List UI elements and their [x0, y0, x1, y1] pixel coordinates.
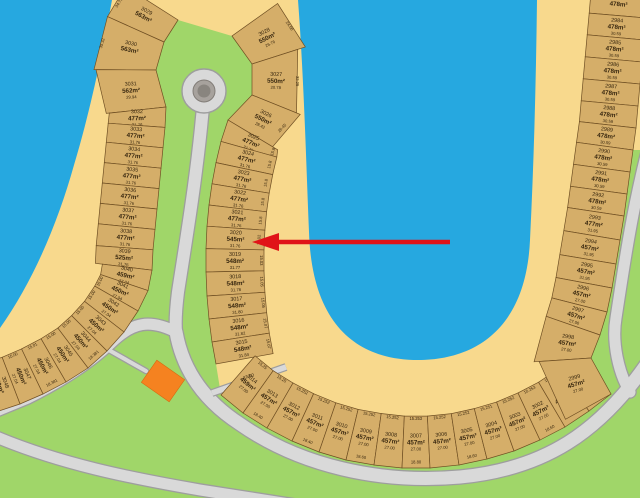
lot-frontage-dimension: 15.05	[259, 276, 264, 287]
lot-frontage-dimension: 15.03	[259, 255, 264, 266]
lot-depth-dimension: 30.59	[611, 31, 623, 37]
lot-3020: 3020545m²31.7615.02	[206, 226, 265, 250]
lot-depth-dimension: 30.59	[605, 96, 617, 102]
lot-depth-dimension: 30.59	[609, 52, 621, 58]
lot-depth-dimension: 31.80	[232, 309, 244, 315]
lot-frontage-dimension: 15.253	[410, 416, 423, 421]
lot-depth-dimension: 31.78	[230, 287, 241, 292]
lot-depth-dimension: 31.76	[120, 241, 132, 247]
lot-frontage-dimension: 15.8	[257, 216, 263, 225]
lot-3019: 3019548m²31.7715.03	[206, 249, 264, 272]
lot-depth-dimension: 27.00	[411, 447, 422, 452]
lot-road-dimension: 18.80	[411, 460, 422, 465]
lot-depth-dimension: 30.59	[607, 74, 619, 80]
cul-de-sac	[182, 69, 226, 113]
lot-3018: 3018548m²31.7815.05	[206, 271, 265, 296]
lot-frontage-dimension: 15.05	[260, 297, 266, 308]
lot-depth-dimension: 20.78	[270, 85, 281, 90]
lot-area: 457m²	[407, 440, 425, 447]
subdivision-plat-map: 3029563m²34.753030563m²35.323031562m²29.…	[0, 0, 640, 498]
lot-depth-dimension: 31.76	[230, 243, 241, 249]
lot-area: 548m²	[226, 258, 244, 265]
lot-depth-dimension: 31.77	[230, 265, 241, 270]
lot-3007: 3007457m²27.0015.25318.80	[402, 416, 430, 468]
lot-depth-dimension: 31.76	[231, 222, 243, 228]
lot-frontage-dimension: 32.25	[295, 76, 300, 87]
map-canvas: 3029563m²34.753030563m²35.323031562m²29.…	[0, 0, 640, 498]
lot-3031: 3031562m²29.94	[96, 70, 166, 114]
lot-depth-dimension: 29.94	[126, 94, 137, 100]
lot-depth-dimension: 31.76	[130, 139, 142, 145]
